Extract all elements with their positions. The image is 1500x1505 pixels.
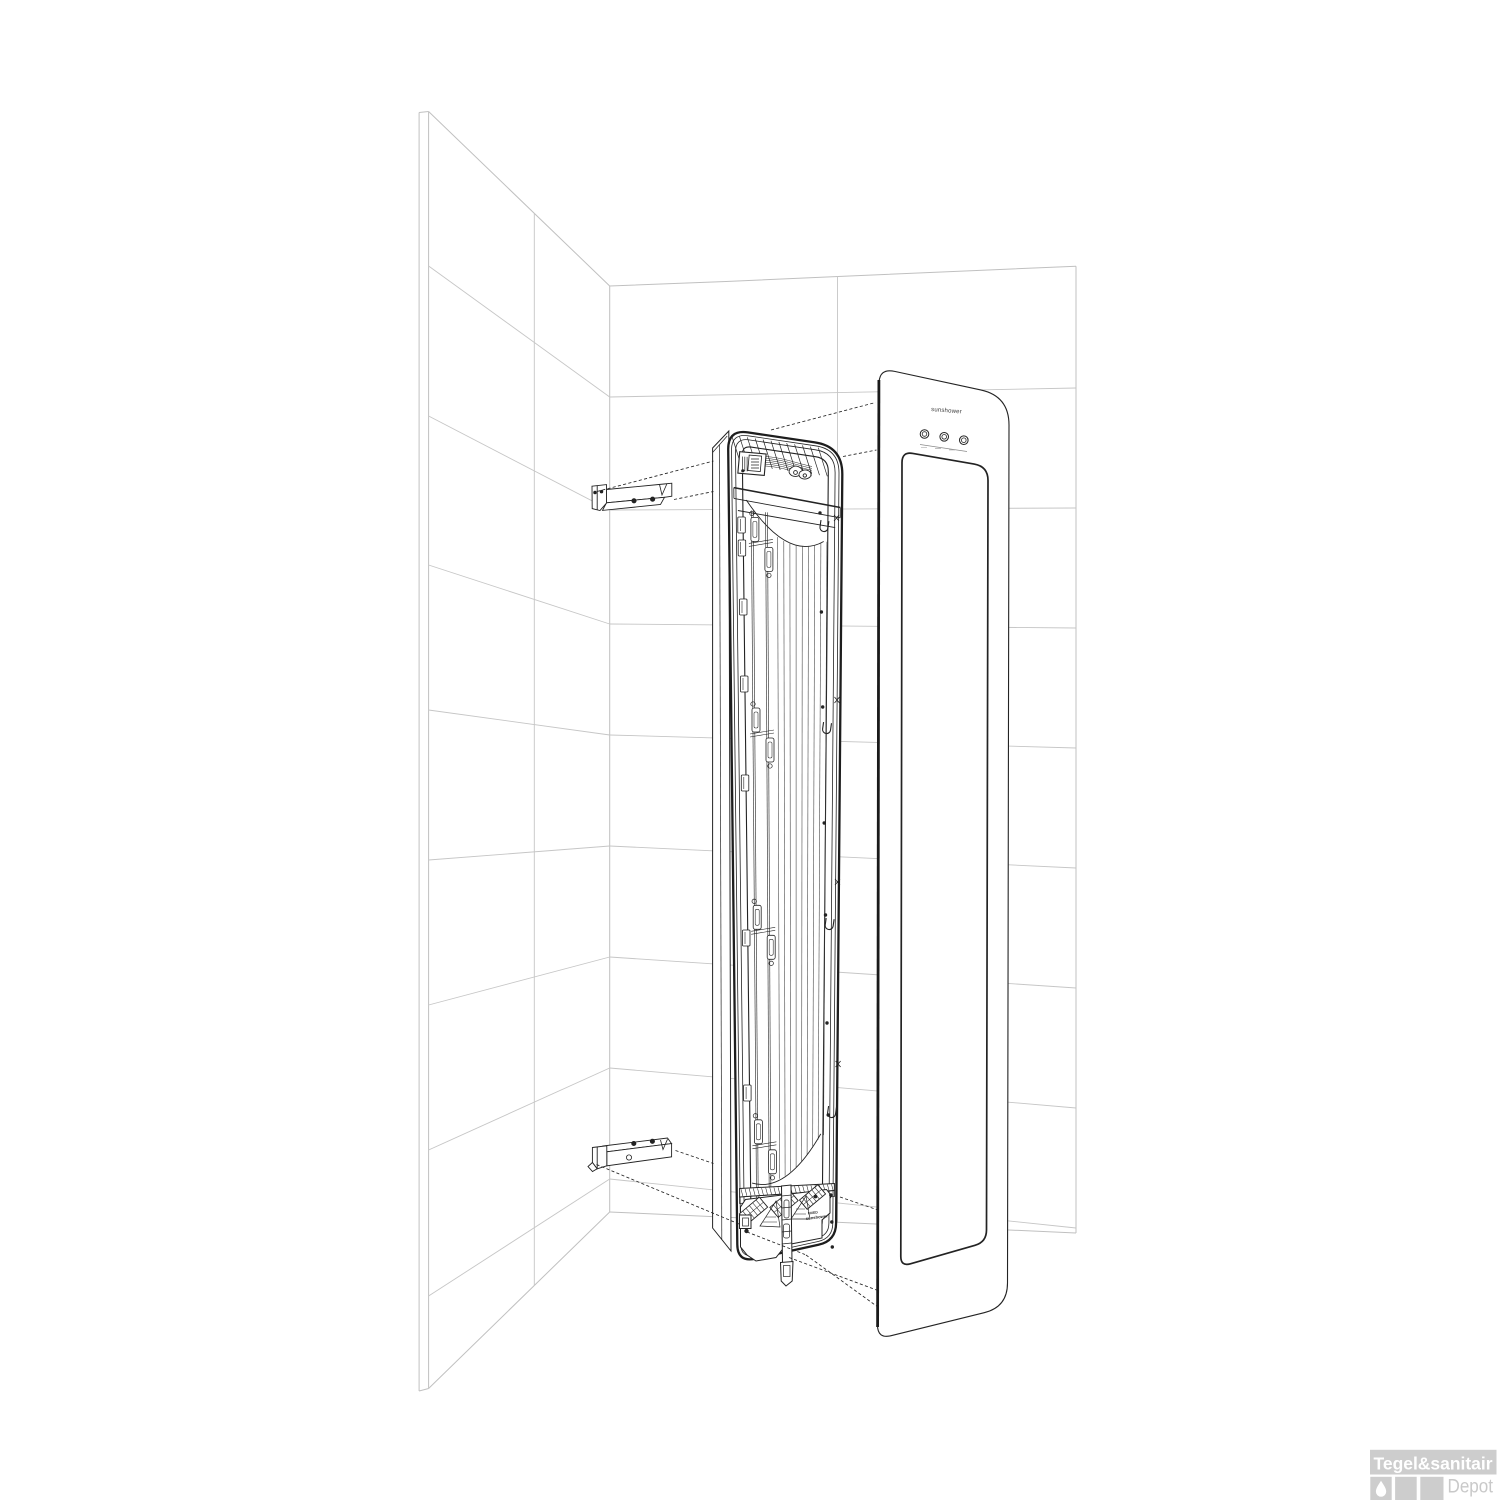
svg-text:Depot: Depot <box>1448 1477 1494 1498</box>
svg-text:Tegel&sanitair: Tegel&sanitair <box>1374 1453 1493 1473</box>
